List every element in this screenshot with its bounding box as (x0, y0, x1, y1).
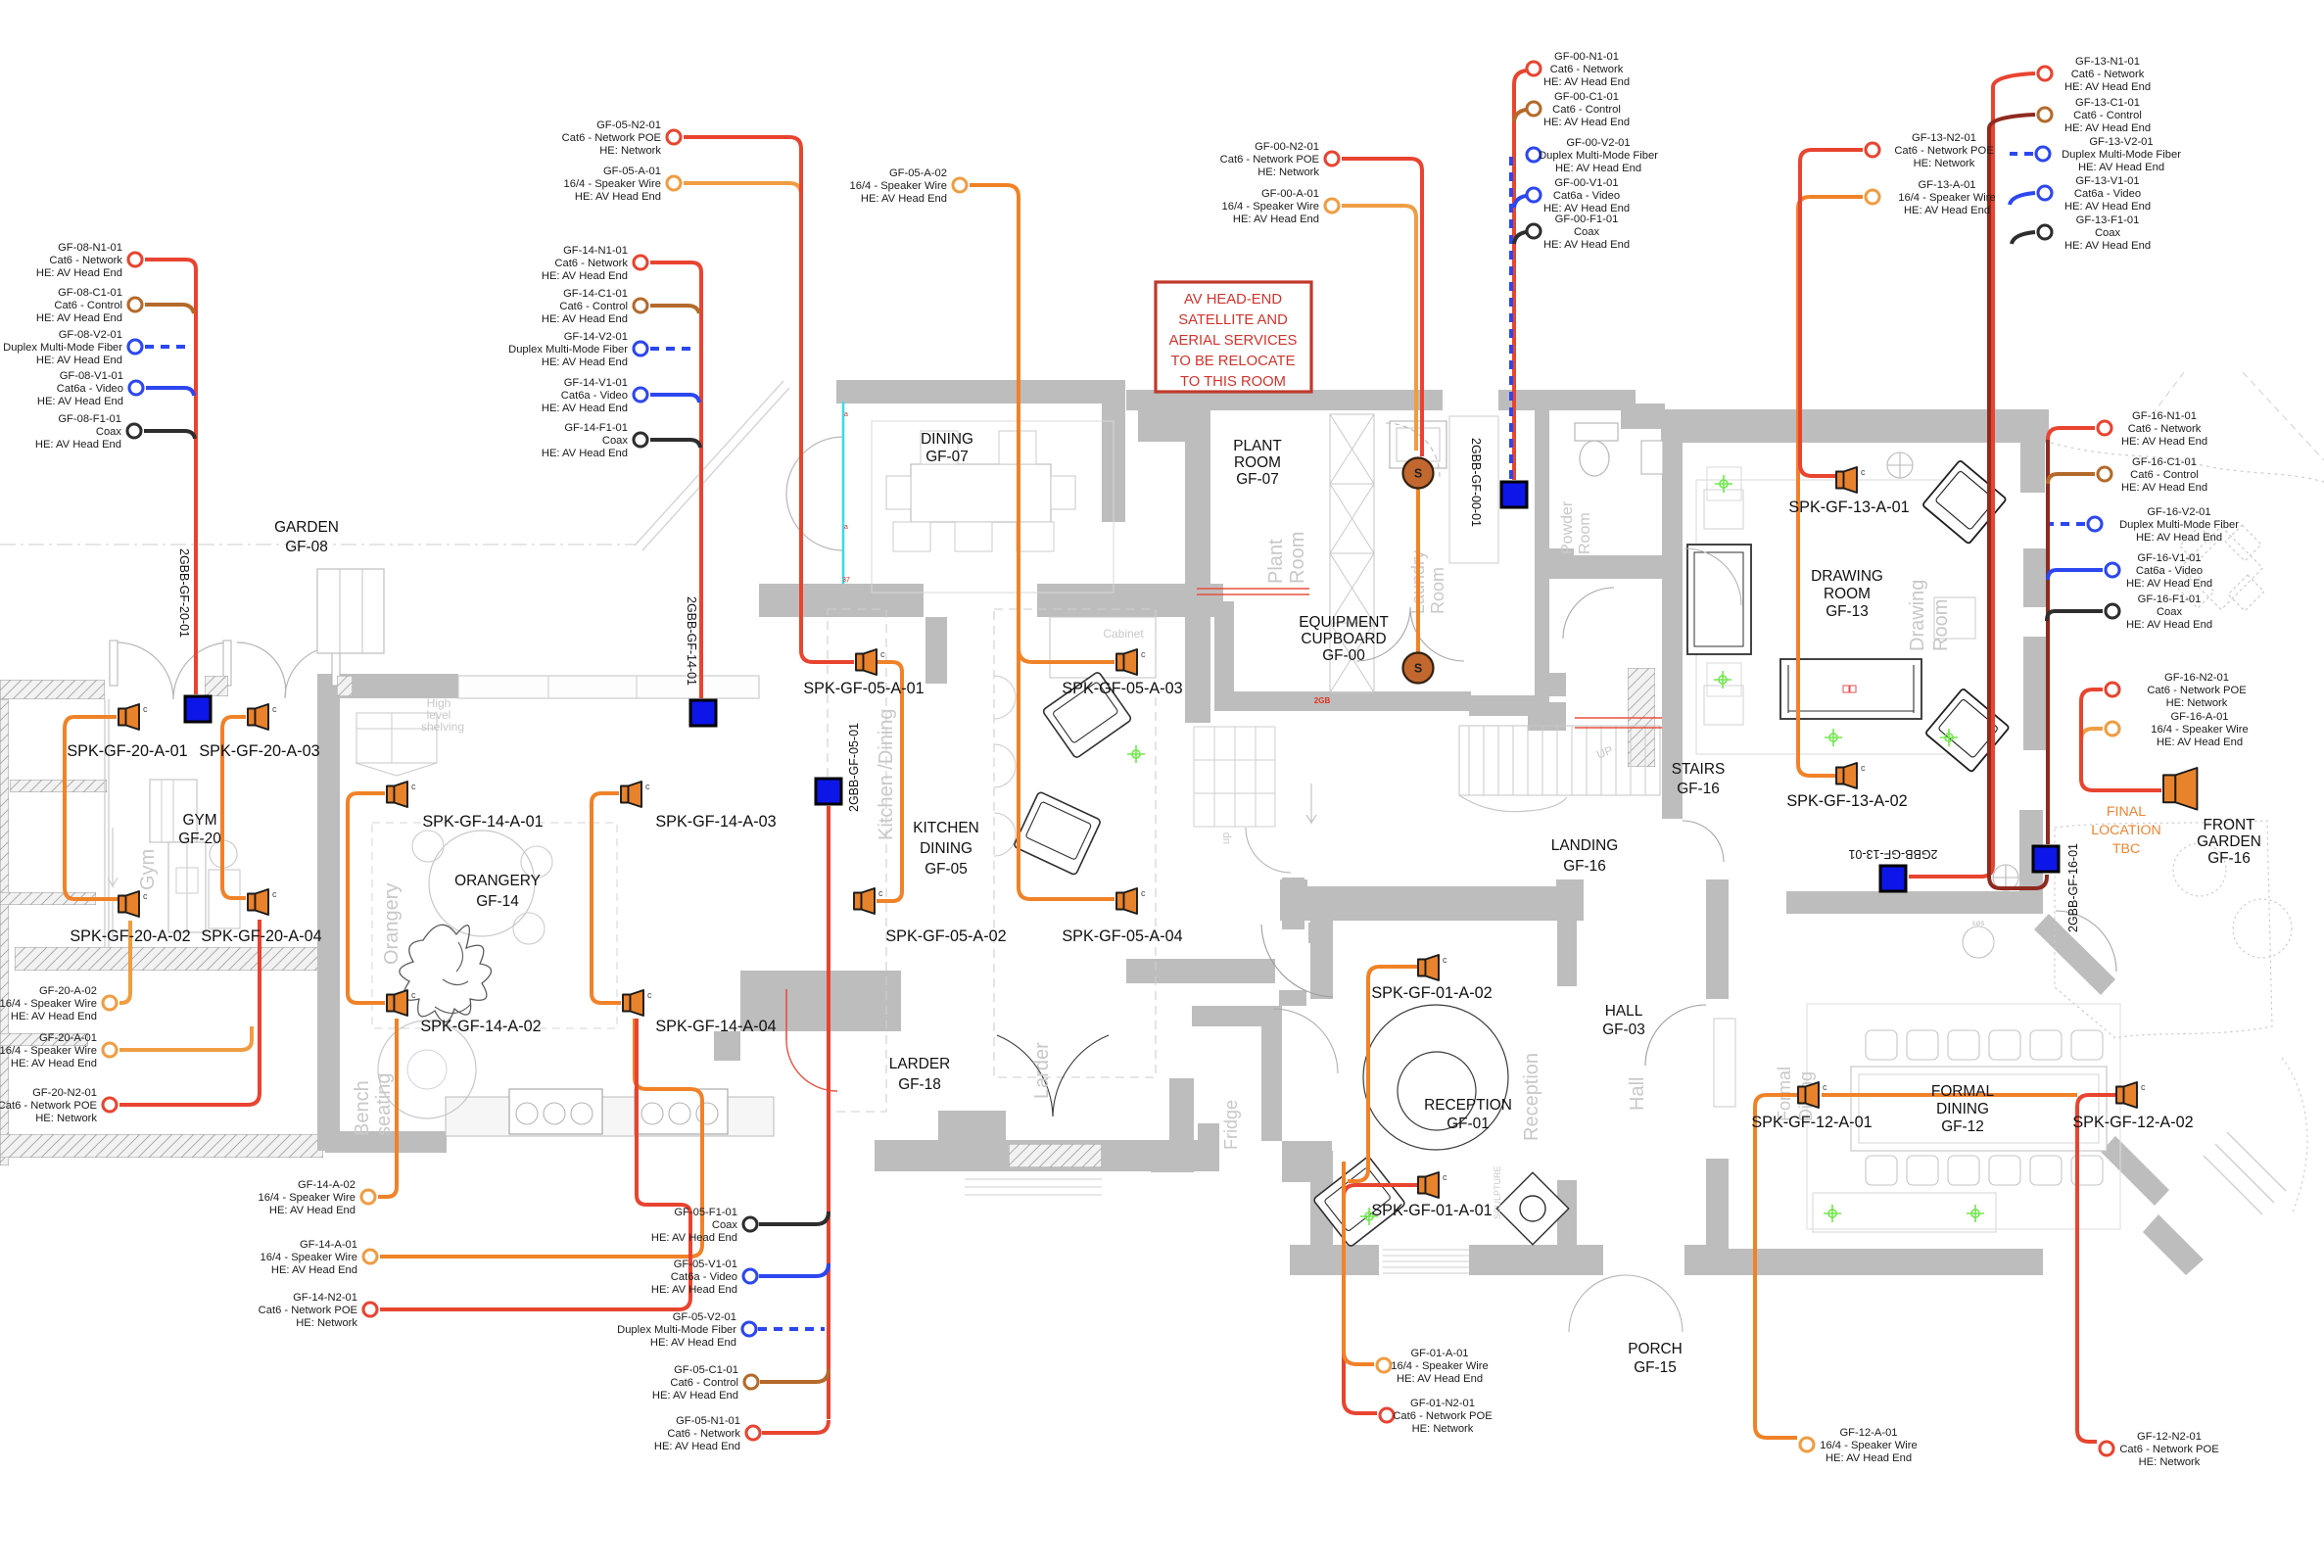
svg-text:c: c (1861, 467, 1866, 477)
svg-text:16/4 - Speaker Wire: 16/4 - Speaker Wire (564, 178, 662, 190)
svg-text:HE: AV Head End: HE: AV Head End (2064, 122, 2151, 134)
svg-text:GF-14-A-01: GF-14-A-01 (300, 1239, 357, 1251)
svg-text:Cat6 - Control: Cat6 - Control (2130, 469, 2199, 481)
svg-text:Cat6 - Network: Cat6 - Network (2128, 423, 2202, 435)
svg-text:SPK-GF-12-A-02: SPK-GF-12-A-02 (2072, 1114, 2193, 1131)
svg-text:Cat6 - Network POE: Cat6 - Network POE (562, 132, 661, 144)
svg-text:SPK-GF-14-A-02: SPK-GF-14-A-02 (420, 1018, 541, 1035)
svg-text:HE: AV Head End: HE: AV Head End (575, 191, 661, 203)
svg-text:Cat6 - Control: Cat6 - Control (2073, 110, 2142, 121)
svg-text:GF-16: GF-16 (1677, 781, 1720, 797)
svg-text:Cat6 - Network POE: Cat6 - Network POE (0, 1100, 97, 1112)
svg-text:Coax: Coax (2095, 227, 2121, 239)
svg-text:a: a (844, 524, 848, 531)
svg-text:GF-16: GF-16 (1563, 858, 1606, 875)
svg-text:Duplex Multi-Mode Fiber: Duplex Multi-Mode Fiber (508, 344, 628, 356)
svg-text:GF-14-V2-01: GF-14-V2-01 (564, 331, 628, 343)
svg-text:c: c (1443, 955, 1447, 965)
svg-text:HE: Network: HE: Network (2139, 1456, 2201, 1468)
svg-text:HE: AV Head End: HE: AV Head End (542, 448, 628, 459)
svg-text:GF-13-N2-01: GF-13-N2-01 (1912, 132, 1976, 144)
svg-text:HE: AV Head End: HE: AV Head End (542, 313, 628, 325)
svg-text:2GBB-GF-20-01: 2GBB-GF-20-01 (177, 548, 191, 638)
svg-text:SPK-GF-13-A-01: SPK-GF-13-A-01 (1788, 499, 1909, 516)
svg-text:HE: AV Head End: HE: AV Head End (271, 1264, 357, 1276)
svg-text:Hall: Hall (1627, 1077, 1648, 1111)
svg-text:TO THIS ROOM: TO THIS ROOM (1180, 374, 1286, 390)
svg-text:Cat6 - Network: Cat6 - Network (2071, 69, 2145, 80)
svg-text:STAIRS: STAIRS (1672, 761, 1725, 778)
svg-text:Cat6 - Network POE: Cat6 - Network POE (2119, 1444, 2218, 1455)
svg-text:GF-01: GF-01 (1447, 1116, 1490, 1132)
svg-text:c: c (2141, 1082, 2146, 1092)
svg-text:GF-00: GF-00 (1322, 647, 1365, 664)
svg-text:GF-08-C1-01: GF-08-C1-01 (58, 287, 122, 299)
svg-text:GF-08-F1-01: GF-08-F1-01 (58, 413, 121, 425)
svg-text:Bench: Bench (352, 1080, 373, 1136)
svg-text:GF-16-V2-01: GF-16-V2-01 (2147, 506, 2210, 518)
svg-text:PLANT: PLANT (1233, 438, 1282, 454)
svg-text:HE: AV Head End: HE: AV Head End (1233, 214, 1319, 225)
svg-text:GF-16-N2-01: GF-16-N2-01 (2164, 672, 2229, 684)
svg-text:GF-14-C1-01: GF-14-C1-01 (563, 288, 628, 300)
svg-text:GF-05-F1-01: GF-05-F1-01 (674, 1207, 737, 1218)
svg-text:GF-12-A-01: GF-12-A-01 (1839, 1427, 1897, 1439)
svg-text:GYM: GYM (182, 812, 216, 829)
svg-text:c: c (1141, 649, 1146, 659)
svg-text:Coax: Coax (1574, 226, 1600, 238)
svg-text:HE: AV Head End: HE: AV Head End (650, 1337, 736, 1349)
svg-text:GF-05-C1-01: GF-05-C1-01 (674, 1364, 738, 1376)
svg-text:GF-00-C1-01: GF-00-C1-01 (1554, 91, 1619, 103)
svg-text:HE: AV Head End: HE: AV Head End (542, 403, 628, 414)
svg-text:c: c (411, 990, 416, 1000)
svg-text:DINING: DINING (1936, 1101, 1989, 1117)
svg-text:PORCH: PORCH (1628, 1341, 1683, 1357)
svg-text:Larder: Larder (1031, 1042, 1053, 1099)
svg-text:Cat6 - Control: Cat6 - Control (1552, 104, 1621, 116)
svg-text:HE: AV Head End: HE: AV Head End (36, 355, 122, 366)
svg-text:GF-13-N1-01: GF-13-N1-01 (2075, 56, 2140, 68)
svg-text:HE: AV Head End: HE: AV Head End (2064, 240, 2151, 252)
svg-text:2GBB-GF-00-01: 2GBB-GF-00-01 (1469, 438, 1483, 527)
svg-text:c: c (878, 888, 883, 898)
svg-text:GF-14: GF-14 (476, 893, 519, 910)
svg-text:2GBB-GF-13-01: 2GBB-GF-13-01 (1848, 847, 1937, 861)
svg-text:ORANGERY: ORANGERY (454, 873, 541, 889)
svg-text:HE: AV Head End: HE: AV Head End (11, 1011, 97, 1022)
svg-text:HE: AV Head End: HE: AV Head End (36, 312, 122, 324)
svg-text:TBC: TBC (2112, 841, 2140, 857)
svg-text:16/4 - Speaker Wire: 16/4 - Speaker Wire (261, 1252, 358, 1263)
svg-text:LOCATION: LOCATION (2091, 823, 2160, 838)
svg-text:SPK-GF-01-A-01: SPK-GF-01-A-01 (1371, 1202, 1492, 1219)
svg-text:16/4 - Speaker Wire: 16/4 - Speaker Wire (2151, 724, 2249, 736)
svg-text:16/4 - Speaker Wire: 16/4 - Speaker Wire (1391, 1360, 1489, 1372)
svg-text:GF-13: GF-13 (1826, 603, 1869, 620)
svg-text:GF-16-C1-01: GF-16-C1-01 (2132, 456, 2197, 468)
svg-text:GF-08-V1-01: GF-08-V1-01 (60, 370, 123, 382)
svg-text:Duplex Multi-Mode Fiber: Duplex Multi-Mode Fiber (3, 342, 122, 354)
svg-text:2GBB-GF-05-01: 2GBB-GF-05-01 (847, 723, 861, 812)
svg-text:c: c (411, 782, 416, 791)
svg-text:Cat6 - Network POE: Cat6 - Network POE (2147, 685, 2246, 696)
svg-text:GF-16-N1-01: GF-16-N1-01 (2132, 410, 2197, 422)
svg-text:GF-14-N2-01: GF-14-N2-01 (293, 1292, 357, 1304)
svg-text:Fridge: Fridge (1221, 1100, 1241, 1150)
svg-text:LANDING: LANDING (1551, 837, 1618, 854)
svg-text:SPK-GF-12-A-01: SPK-GF-12-A-01 (1751, 1114, 1872, 1131)
svg-text:Room: Room (1287, 532, 1308, 584)
svg-text:GARDEN: GARDEN (2197, 833, 2261, 850)
svg-text:HE: AV Head End: HE: AV Head End (2136, 532, 2222, 544)
svg-text:GF-00-N1-01: GF-00-N1-01 (1554, 51, 1619, 63)
svg-text:c: c (143, 891, 148, 901)
svg-text:Duplex Multi-Mode Fiber: Duplex Multi-Mode Fiber (2062, 149, 2181, 161)
svg-text:SPK-GF-20-A-03: SPK-GF-20-A-03 (199, 742, 319, 760)
svg-text:TO BE RELOCATE: TO BE RELOCATE (1171, 354, 1296, 369)
svg-text:GF-08: GF-08 (285, 539, 328, 555)
svg-text:søs: søs (1972, 919, 1985, 927)
svg-text:Cat6 - Network: Cat6 - Network (667, 1428, 740, 1440)
svg-text:KITCHEN: KITCHEN (913, 820, 979, 836)
svg-text:GF-16-F1-01: GF-16-F1-01 (2138, 594, 2202, 605)
svg-text:Cat6 - Network POE: Cat6 - Network POE (1220, 154, 1319, 166)
svg-text:c: c (272, 704, 277, 714)
svg-text:DINING: DINING (920, 840, 972, 857)
svg-text:Duplex Multi-Mode Fiber: Duplex Multi-Mode Fiber (617, 1324, 736, 1336)
svg-text:up: up (1220, 832, 1232, 844)
svg-text:FRONT: FRONT (2203, 817, 2255, 833)
svg-text:Cat6a - Video: Cat6a - Video (671, 1271, 737, 1283)
svg-text:GF-13-V2-01: GF-13-V2-01 (2089, 136, 2153, 148)
svg-text:GF-14-N1-01: GF-14-N1-01 (563, 245, 628, 257)
svg-text:HE: AV Head End: HE: AV Head End (2126, 619, 2212, 631)
svg-text:GF-07: GF-07 (1236, 471, 1279, 488)
svg-text:GF-20-N2-01: GF-20-N2-01 (32, 1087, 97, 1099)
svg-text:16/4 - Speaker Wire: 16/4 - Speaker Wire (1222, 201, 1320, 213)
svg-text:GF-14-F1-01: GF-14-F1-01 (564, 422, 628, 434)
svg-text:HE: AV Head End: HE: AV Head End (36, 267, 122, 279)
svg-text:c: c (1141, 888, 1146, 898)
svg-text:c: c (1443, 1172, 1447, 1182)
svg-text:Coax: Coax (712, 1219, 738, 1231)
svg-text:GF-13-F1-01: GF-13-F1-01 (2076, 214, 2140, 226)
svg-text:ROOM: ROOM (1824, 586, 1871, 602)
svg-text:HE: Network: HE: Network (1412, 1423, 1474, 1435)
svg-text:Coax: Coax (602, 435, 629, 447)
svg-text:HE: Network: HE: Network (2166, 697, 2228, 709)
svg-text:GF-05-V2-01: GF-05-V2-01 (673, 1311, 736, 1323)
svg-text:2GB: 2GB (1314, 696, 1331, 705)
svg-text:HE: Network: HE: Network (1914, 158, 1975, 169)
svg-text:SPK-GF-05-A-04: SPK-GF-05-A-04 (1062, 927, 1182, 945)
svg-text:16/4 - Speaker Wire: 16/4 - Speaker Wire (259, 1192, 356, 1204)
svg-text:c: c (143, 704, 148, 714)
svg-text:shelving: shelving (421, 720, 464, 734)
svg-text:HE: AV Head End: HE: AV Head End (1555, 163, 1641, 174)
svg-text:Powder: Powder (1559, 500, 1576, 554)
svg-text:GF-13-V1-01: GF-13-V1-01 (2075, 175, 2139, 187)
svg-text:DINING: DINING (921, 431, 973, 448)
svg-text:Room: Room (1930, 599, 1952, 651)
svg-text:AERIAL SERVICES: AERIAL SERVICES (1169, 333, 1298, 349)
svg-text:HE: AV Head End: HE: AV Head End (35, 439, 121, 451)
svg-text:CUPBOARD: CUPBOARD (1301, 631, 1386, 647)
svg-text:GF-00-V1-01: GF-00-V1-01 (1554, 177, 1618, 189)
svg-text:Duplex Multi-Mode Fiber: Duplex Multi-Mode Fiber (1539, 150, 1658, 162)
svg-text:GF-05-V1-01: GF-05-V1-01 (674, 1259, 737, 1270)
svg-text:a: a (844, 411, 848, 418)
svg-text:Room: Room (1428, 567, 1447, 614)
svg-text:16/4 - Speaker Wire: 16/4 - Speaker Wire (850, 180, 948, 192)
svg-text:SPK-GF-05-A-03: SPK-GF-05-A-03 (1062, 680, 1182, 697)
svg-text:HE: AV Head End: HE: AV Head End (1904, 205, 1990, 216)
svg-text:Cat6 - Network: Cat6 - Network (554, 258, 628, 269)
svg-text:HE: AV Head End: HE: AV Head End (11, 1058, 97, 1069)
svg-text:HE: AV Head End: HE: AV Head End (542, 356, 628, 368)
svg-text:S: S (1414, 662, 1422, 676)
svg-text:HE: Network: HE: Network (296, 1317, 357, 1329)
svg-text:GF-13-A-01: GF-13-A-01 (1918, 179, 1975, 191)
svg-text:HE: AV Head End: HE: AV Head End (1397, 1373, 1483, 1385)
svg-text:GF-01-A-01: GF-01-A-01 (1410, 1348, 1468, 1359)
svg-text:HE: AV Head End: HE: AV Head End (654, 1441, 740, 1452)
svg-text:GF-12: GF-12 (1941, 1118, 1984, 1135)
svg-text:GF-20-A-01: GF-20-A-01 (39, 1032, 97, 1044)
svg-text:Coax: Coax (96, 426, 122, 438)
svg-text:SPK-GF-20-A-02: SPK-GF-20-A-02 (70, 927, 190, 945)
svg-text:GF-16: GF-16 (2207, 850, 2251, 867)
svg-text:Reception: Reception (1521, 1053, 1542, 1141)
svg-text:HE: AV Head End: HE: AV Head End (1543, 117, 1630, 128)
svg-text:Gym: Gym (137, 849, 159, 890)
svg-text:SPK-GF-14-A-04: SPK-GF-14-A-04 (655, 1018, 776, 1035)
svg-text:HE: AV Head End: HE: AV Head End (2157, 736, 2243, 748)
svg-text:GF-00-F1-01: GF-00-F1-01 (1555, 214, 1619, 225)
svg-text:GF-05-N2-01: GF-05-N2-01 (596, 119, 661, 131)
svg-text:S: S (1414, 467, 1422, 481)
svg-text:Cat6 - Control: Cat6 - Control (559, 301, 628, 312)
svg-text:HALL: HALL (1605, 1003, 1643, 1020)
svg-text:SPK-GF-14-A-03: SPK-GF-14-A-03 (655, 813, 776, 831)
svg-text:Coax: Coax (2157, 606, 2183, 618)
svg-text:seating: seating (373, 1073, 395, 1137)
svg-text:GF-05-A-02: GF-05-A-02 (889, 167, 947, 179)
svg-text:GF-05-A-01: GF-05-A-01 (603, 166, 661, 177)
svg-text:Duplex Multi-Mode Fiber: Duplex Multi-Mode Fiber (2119, 519, 2239, 531)
svg-text:Cat6a - Video: Cat6a - Video (57, 383, 123, 395)
svg-text:GF-05-N1-01: GF-05-N1-01 (676, 1415, 740, 1427)
svg-text:SATELLITE AND: SATELLITE AND (1178, 312, 1288, 328)
svg-text:Orangery: Orangery (381, 883, 403, 965)
svg-text:HE: AV Head End: HE: AV Head End (651, 1284, 737, 1296)
svg-text:GF-01-N2-01: GF-01-N2-01 (1410, 1398, 1475, 1409)
svg-text:DRAWING: DRAWING (1811, 568, 1883, 585)
svg-text:Cat6a - Video: Cat6a - Video (2136, 565, 2203, 577)
svg-text:SPK-GF-20-A-04: SPK-GF-20-A-04 (201, 927, 321, 945)
svg-text:SPK-GF-14-A-01: SPK-GF-14-A-01 (422, 813, 543, 831)
svg-text:Kitchen /Dining: Kitchen /Dining (876, 708, 897, 840)
svg-text:c: c (1823, 1082, 1827, 1092)
svg-text:SPK-GF-20-A-01: SPK-GF-20-A-01 (67, 742, 187, 760)
svg-text:HE: Network: HE: Network (35, 1113, 97, 1124)
svg-text:GF-20-A-02: GF-20-A-02 (39, 985, 97, 997)
svg-text:GF-12-N2-01: GF-12-N2-01 (2137, 1431, 2202, 1443)
svg-text:SPK-GF-05-A-02: SPK-GF-05-A-02 (885, 927, 1006, 945)
svg-text:GF-03: GF-03 (1602, 1022, 1645, 1038)
svg-text:Cat6 - Network POE: Cat6 - Network POE (259, 1305, 357, 1316)
svg-text:Plant: Plant (1265, 539, 1287, 584)
svg-text:c: c (647, 990, 652, 1000)
svg-text:FINAL: FINAL (2107, 804, 2146, 820)
svg-text:HE: AV Head End: HE: AV Head End (1543, 76, 1630, 88)
svg-text:GF-14-V1-01: GF-14-V1-01 (564, 377, 628, 389)
svg-text:HE: Network: HE: Network (1257, 166, 1319, 178)
svg-text:Cat6 - Control: Cat6 - Control (54, 300, 122, 311)
svg-text:HE: AV Head End: HE: AV Head End (269, 1205, 356, 1216)
svg-text:Cat6a - Video: Cat6a - Video (2074, 188, 2141, 200)
svg-text:GF-07: GF-07 (925, 449, 969, 465)
svg-text:c: c (1861, 763, 1866, 773)
svg-text:HE: Network: HE: Network (599, 145, 661, 157)
svg-text:EQUIPMENT: EQUIPMENT (1299, 614, 1389, 631)
svg-text:HE: AV Head End: HE: AV Head End (37, 396, 123, 407)
svg-text:2GBB-GF-14-01: 2GBB-GF-14-01 (685, 596, 698, 686)
svg-text:SPK-GF-01-A-02: SPK-GF-01-A-02 (1371, 984, 1492, 1002)
svg-text:AV HEAD-END: AV HEAD-END (1184, 292, 1282, 308)
svg-text:Cat6a - Video: Cat6a - Video (1553, 190, 1620, 202)
svg-text:SCULPTURE: SCULPTURE (1493, 1165, 1502, 1219)
svg-text:HE: AV Head End: HE: AV Head End (2064, 81, 2151, 93)
svg-text:HE: AV Head End: HE: AV Head End (2121, 436, 2207, 448)
svg-text:SPK-GF-13-A-02: SPK-GF-13-A-02 (1786, 792, 1907, 810)
svg-text:16/4 - Speaker Wire: 16/4 - Speaker Wire (1898, 192, 1996, 204)
svg-text:2GBB-GF-16-01: 2GBB-GF-16-01 (2066, 843, 2080, 932)
svg-text:Cat6 - Network: Cat6 - Network (49, 255, 122, 266)
svg-text:Cat6 - Network POE: Cat6 - Network POE (1894, 145, 1993, 157)
svg-text:Cat6 - Network: Cat6 - Network (1550, 64, 1624, 75)
svg-text:c: c (272, 889, 277, 899)
svg-text:ROOM: ROOM (1234, 454, 1281, 471)
svg-text:16/4 - Speaker Wire: 16/4 - Speaker Wire (0, 998, 97, 1010)
svg-text:GF-16-V1-01: GF-16-V1-01 (2137, 552, 2201, 564)
svg-text:HE: AV Head End: HE: AV Head End (1543, 239, 1630, 251)
svg-text:GF-15: GF-15 (1634, 1359, 1677, 1376)
svg-text:HE: AV Head End: HE: AV Head End (2064, 201, 2151, 213)
svg-text:Drawing: Drawing (1907, 580, 1928, 651)
svg-text:Cat6a - Video: Cat6a - Video (561, 390, 628, 402)
svg-text:GARDEN: GARDEN (274, 519, 339, 536)
svg-text:Cabinet: Cabinet (1103, 627, 1144, 641)
svg-text:GF-05: GF-05 (925, 861, 968, 878)
svg-text:RECEPTION: RECEPTION (1424, 1097, 1512, 1114)
svg-text:GF-00-V2-01: GF-00-V2-01 (1566, 137, 1630, 149)
svg-text:HE: AV Head End: HE: AV Head End (861, 193, 947, 205)
svg-text:SPK-GF-05-A-01: SPK-GF-05-A-01 (803, 680, 924, 697)
svg-text:HE: AV Head End: HE: AV Head End (652, 1390, 738, 1402)
svg-text:Cat6 - Network POE: Cat6 - Network POE (1393, 1410, 1492, 1422)
svg-text:Room: Room (1577, 512, 1593, 554)
svg-text:16/4 - Speaker Wire: 16/4 - Speaker Wire (1820, 1440, 1918, 1451)
svg-text:GF-08-N1-01: GF-08-N1-01 (58, 242, 122, 254)
svg-text:GF-20: GF-20 (178, 831, 221, 847)
svg-text:GF-16-A-01: GF-16-A-01 (2170, 711, 2228, 723)
svg-text:GF-08-V2-01: GF-08-V2-01 (59, 329, 122, 341)
svg-text:HE: AV Head End: HE: AV Head End (1826, 1452, 1912, 1464)
svg-text:HE: AV Head End: HE: AV Head End (2078, 162, 2164, 173)
svg-text:HE: AV Head End: HE: AV Head End (651, 1232, 737, 1244)
svg-text:HE: AV Head End: HE: AV Head End (2121, 482, 2207, 494)
svg-text:Cat6 - Control: Cat6 - Control (670, 1377, 738, 1389)
svg-text:GF-00-N2-01: GF-00-N2-01 (1255, 141, 1319, 153)
svg-text:FORMAL: FORMAL (1931, 1083, 1995, 1100)
svg-text:LARDER: LARDER (889, 1056, 950, 1072)
svg-text:GF-14-A-02: GF-14-A-02 (298, 1179, 356, 1191)
svg-text:GF-00-A-01: GF-00-A-01 (1261, 188, 1319, 200)
svg-text:c: c (645, 782, 650, 791)
svg-text:HE: AV Head End: HE: AV Head End (2126, 578, 2212, 590)
svg-text:GF-18: GF-18 (898, 1076, 941, 1093)
svg-text:HE: AV Head End: HE: AV Head End (542, 270, 628, 282)
svg-text:16/4 - Speaker Wire: 16/4 - Speaker Wire (0, 1045, 97, 1057)
svg-text:GF-13-C1-01: GF-13-C1-01 (2075, 97, 2140, 109)
svg-text:37: 37 (842, 577, 850, 584)
svg-text:c: c (880, 649, 885, 659)
